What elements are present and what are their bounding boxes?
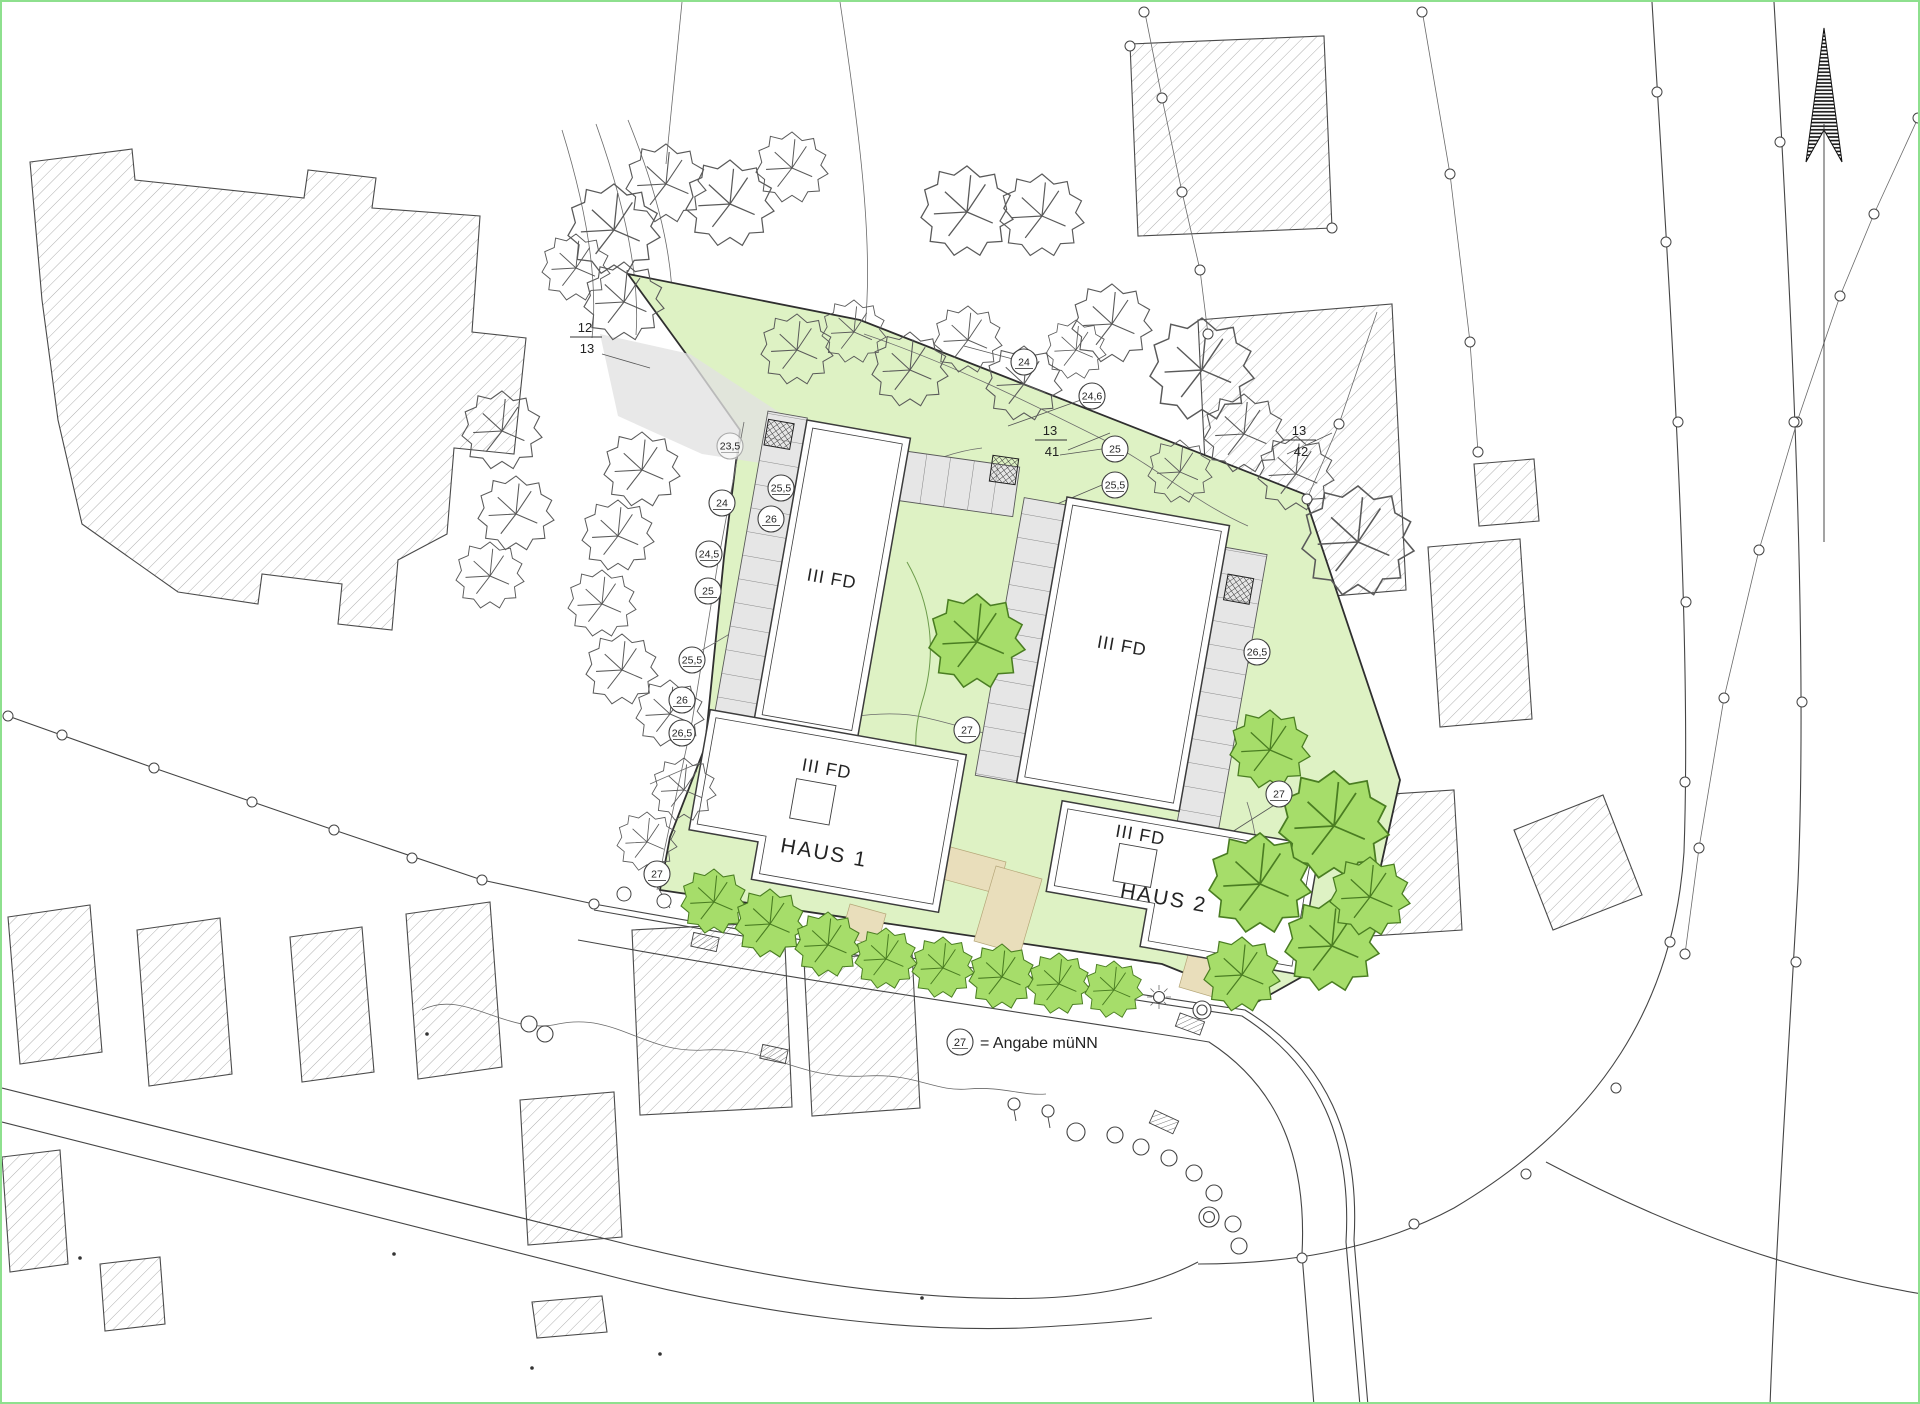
streetlight-icon	[1147, 985, 1171, 1009]
elevation-mark: 26,5	[1244, 639, 1270, 665]
svg-text:24,5: 24,5	[699, 549, 720, 561]
elevation-mark: 26,5	[669, 720, 695, 746]
svg-text:23,5: 23,5	[720, 441, 741, 453]
elevation-mark: 27	[954, 717, 980, 743]
svg-text:13: 13	[580, 341, 594, 356]
svg-text:25: 25	[702, 586, 714, 598]
svg-text:41: 41	[1045, 444, 1059, 459]
legend-text: = Angabe müNN	[980, 1035, 1098, 1052]
tree-outline-icon	[617, 812, 677, 870]
sign-post-icon	[1008, 1098, 1020, 1121]
stairwell	[790, 779, 836, 825]
parcel-number: 1213	[570, 320, 602, 356]
svg-text:27: 27	[1273, 789, 1285, 801]
existing-house	[2, 1150, 68, 1272]
sign-post-icon	[1042, 1105, 1054, 1128]
svg-text:27: 27	[961, 725, 973, 737]
svg-text:25: 25	[1109, 444, 1121, 456]
svg-text:25,5: 25,5	[682, 655, 703, 667]
svg-text:26: 26	[765, 514, 777, 526]
tree-outline-icon	[582, 500, 654, 570]
elevation-mark: 26	[669, 687, 695, 713]
svg-text:24,6: 24,6	[1082, 391, 1103, 403]
elevation-mark: 25,5	[1102, 472, 1128, 498]
tree-outline-icon	[686, 160, 774, 245]
elevation-mark: 24	[709, 490, 735, 516]
elevation-mark: 27	[644, 861, 670, 887]
svg-text:26,5: 26,5	[1247, 647, 1268, 659]
existing-house	[532, 1296, 607, 1338]
tree-icon	[1028, 953, 1090, 1013]
existing-building-northwest	[30, 149, 526, 630]
elevation-mark: 25,5	[679, 647, 705, 673]
elevation-mark: 25	[695, 578, 721, 604]
tree-outline-icon	[456, 542, 524, 608]
tree-icon	[912, 937, 974, 997]
north-arrow-icon	[1806, 28, 1842, 542]
elevation-mark: 24,5	[696, 541, 722, 567]
elevation-mark: 24	[1011, 349, 1037, 375]
existing-house	[406, 902, 502, 1079]
existing-building-southeast-b	[1514, 795, 1642, 930]
svg-text:42: 42	[1294, 444, 1308, 459]
existing-building-fareast-tall	[1428, 539, 1532, 727]
existing-house	[100, 1257, 165, 1331]
tree-icon	[969, 944, 1035, 1008]
existing-house	[137, 918, 232, 1086]
tree-outline-icon	[478, 476, 554, 550]
svg-text:27: 27	[651, 869, 663, 881]
tree-outline-icon	[756, 132, 828, 202]
svg-text:13: 13	[1043, 423, 1057, 438]
svg-text:12: 12	[578, 320, 592, 335]
existing-house	[520, 1092, 622, 1245]
svg-text:24: 24	[1018, 357, 1030, 369]
existing-house	[290, 927, 374, 1082]
svg-text:26: 26	[676, 695, 688, 707]
elevation-mark: 24,6	[1079, 383, 1105, 409]
site-plan-page: III FD III FD HAUS 1 III FD III FD HAUS …	[0, 0, 1920, 1404]
existing-building-fareast-small	[1474, 459, 1539, 526]
elevation-mark: 23,5	[717, 433, 743, 459]
street-box-icon	[1149, 1110, 1178, 1134]
tree-icon	[1085, 961, 1143, 1017]
svg-text:26,5: 26,5	[672, 728, 693, 740]
tree-outline-icon	[604, 432, 680, 506]
site-plan-drawing: III FD III FD HAUS 1 III FD III FD HAUS …	[2, 2, 1920, 1404]
elevation-mark: 27	[1266, 781, 1292, 807]
legend: 27 = Angabe müNN	[947, 1029, 1098, 1055]
svg-text:24: 24	[716, 498, 728, 510]
elevation-mark: 26	[758, 506, 784, 532]
svg-text:13: 13	[1292, 423, 1306, 438]
tree-outline-icon	[1046, 320, 1106, 378]
legend-symbol: 27	[954, 1037, 966, 1049]
utility-core	[989, 455, 1018, 484]
tree-outline-icon	[586, 634, 658, 704]
svg-text:25,5: 25,5	[1105, 480, 1126, 492]
tree-outline-icon	[568, 570, 636, 636]
svg-text:25,5: 25,5	[771, 483, 792, 495]
elevation-mark: 25	[1102, 436, 1128, 462]
elevation-mark: 25,5	[768, 475, 794, 501]
tree-outline-icon	[626, 144, 706, 222]
utility-core	[1224, 574, 1254, 604]
existing-house	[8, 905, 102, 1064]
utility-core	[764, 419, 794, 449]
tree-outline-icon	[1072, 284, 1152, 362]
tree-outline-icon	[921, 166, 1013, 255]
existing-building-topright	[1130, 36, 1332, 236]
tree-outline-icon	[1000, 174, 1084, 255]
